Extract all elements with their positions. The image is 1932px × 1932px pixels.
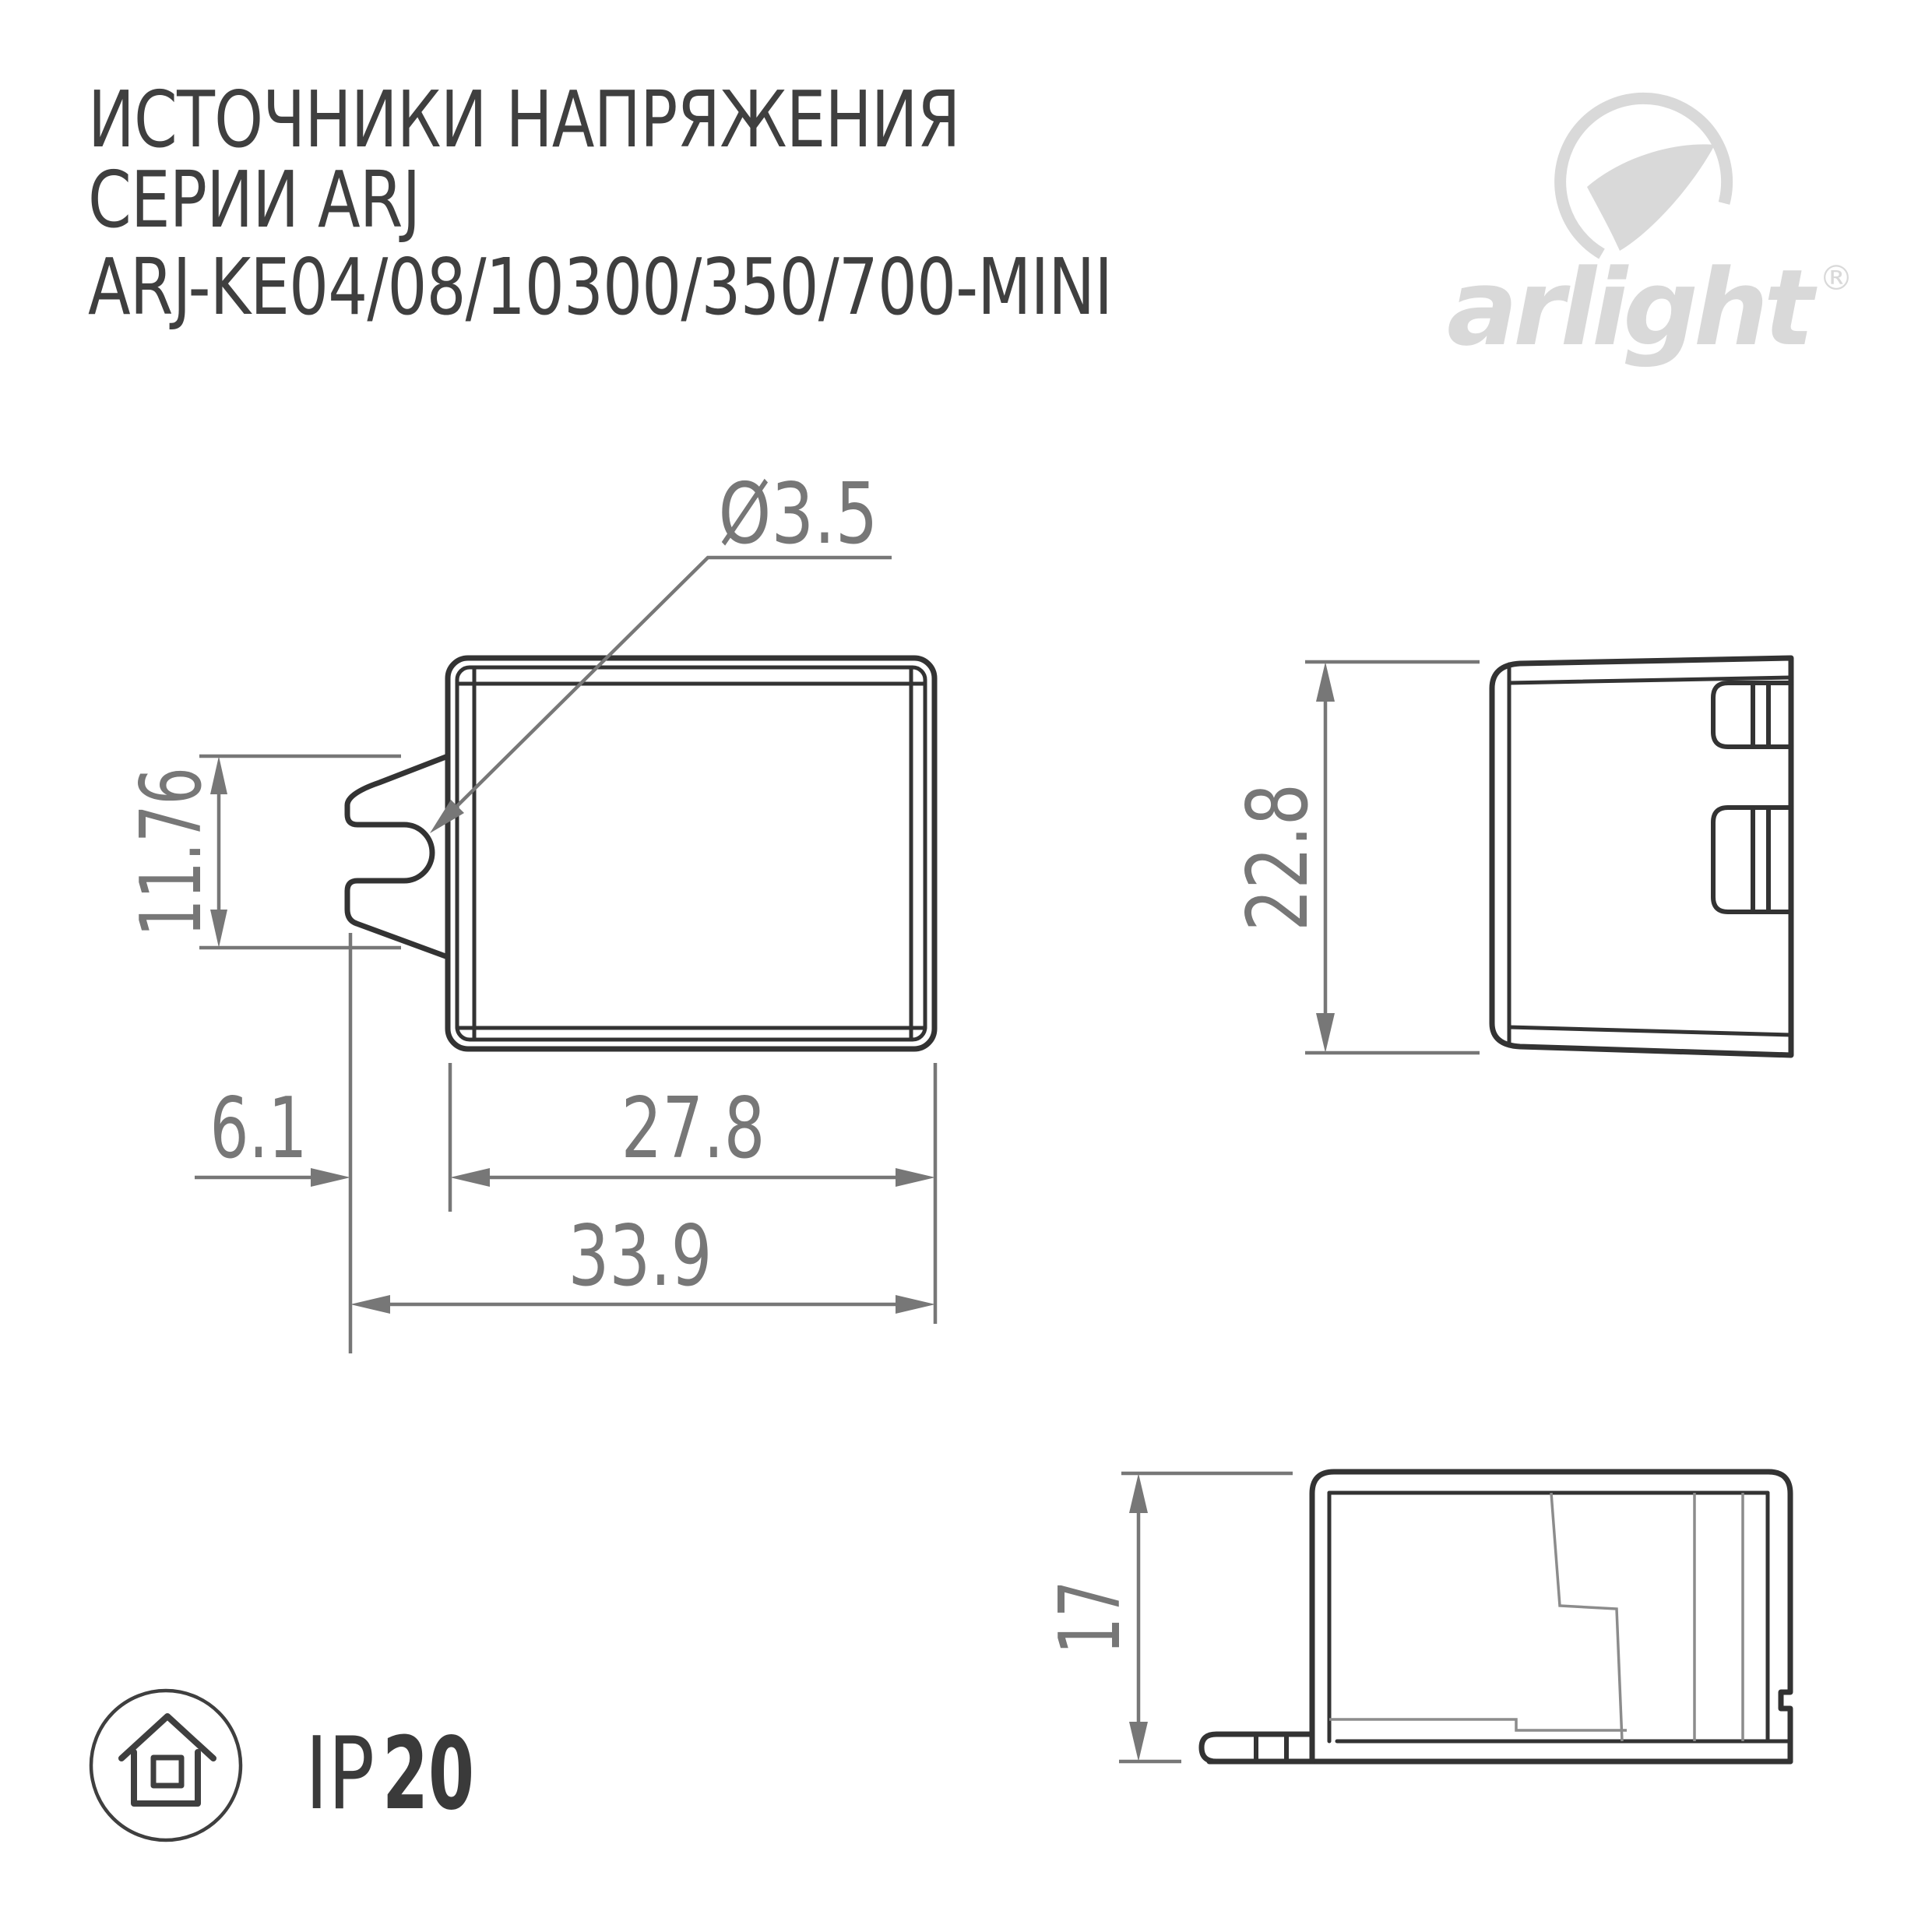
dimension-total-width: 33.9 [568,1208,713,1305]
logo-brand-text: arlight [1447,247,1818,369]
front-view-dimensions [195,558,935,1353]
dimension-side-height: 22.8 [1230,783,1327,931]
ip-rating-value: 20 [382,1716,474,1832]
arrowhead-up-icon [1129,1473,1148,1513]
front-view-mounting-clip [347,756,448,957]
profile-internal-step [1551,1493,1622,1741]
profile-view-dimensions [1119,1473,1293,1761]
house-icon [121,1716,213,1804]
front-view-inner-case [457,667,925,1040]
technical-drawing-page: ИСТОЧНИКИ НАПРЯЖЕНИЯ СЕРИИ ARJ ARJ-KE04/… [0,0,1932,1932]
side-view-dimensions [1305,662,1480,1053]
ip-rating-badge [91,1691,241,1840]
side-view-outline [1492,658,1791,1055]
dimension-body-width: 27.8 [621,1080,765,1177]
arrowhead-left-icon [450,1168,490,1187]
arrowhead-up-icon [1316,662,1335,702]
profile-outline [1312,1472,1790,1761]
badge-circle [91,1691,241,1840]
arrowhead-right-icon [896,1168,935,1187]
dimension-clip-offset: 6.1 [210,1080,308,1177]
arrowhead-down-icon [1129,1722,1148,1761]
arrowhead-right-icon [896,1295,935,1314]
dimension-clip-height: 11.76 [123,767,220,937]
arlight-logo: arlight ® [1447,98,1853,369]
dimension-drawing: arlight ® [0,0,1932,1932]
front-view [347,658,934,1049]
arrowhead-down-icon [1316,1013,1335,1053]
profile-view-internal [1329,1493,1743,1741]
logo-registered-mark: ® [1819,259,1853,298]
dimension-hole-diameter: Ø3.5 [719,466,878,563]
arlight-swoosh-sail [1587,144,1715,251]
side-view [1492,658,1791,1055]
ip-rating-prefix: IP [305,1716,375,1832]
dimension-profile-depth: 17 [1042,1581,1139,1655]
arrowhead-left-icon [350,1295,390,1314]
front-view-outer-case [448,658,934,1049]
profile-internal-shelf [1329,1719,1627,1730]
house-window [153,1758,181,1786]
profile-view [1202,1472,1790,1761]
arrowhead-right-icon [311,1168,350,1187]
side-view-bottom-seam [1509,1027,1791,1035]
